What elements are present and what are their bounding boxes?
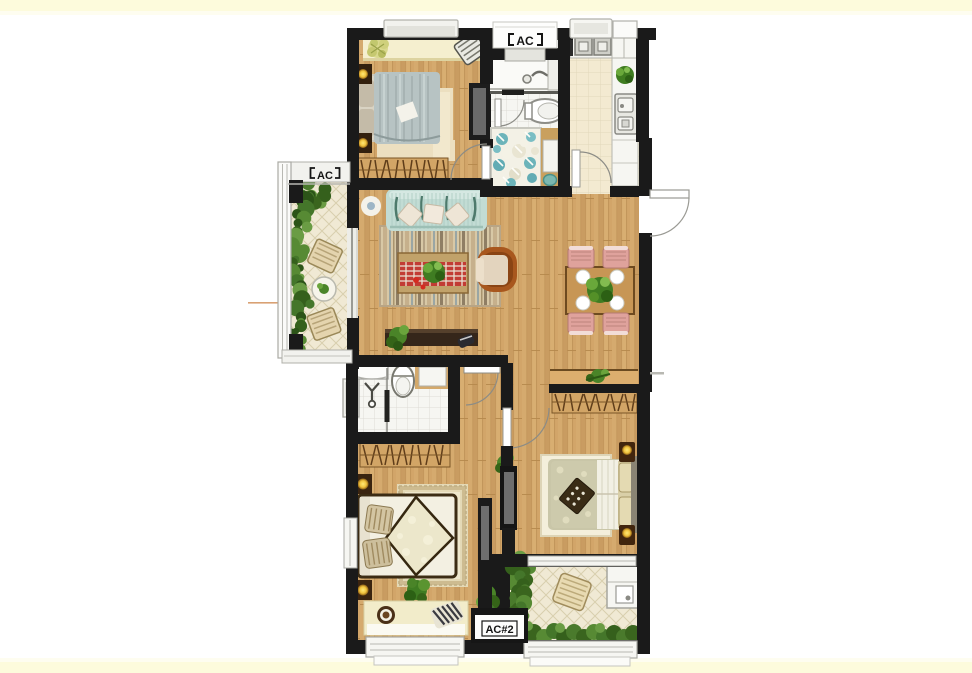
svg-text:AC: AC — [516, 34, 534, 48]
svg-text:AC#2: AC#2 — [485, 624, 513, 636]
svg-text:AC: AC — [317, 170, 333, 182]
